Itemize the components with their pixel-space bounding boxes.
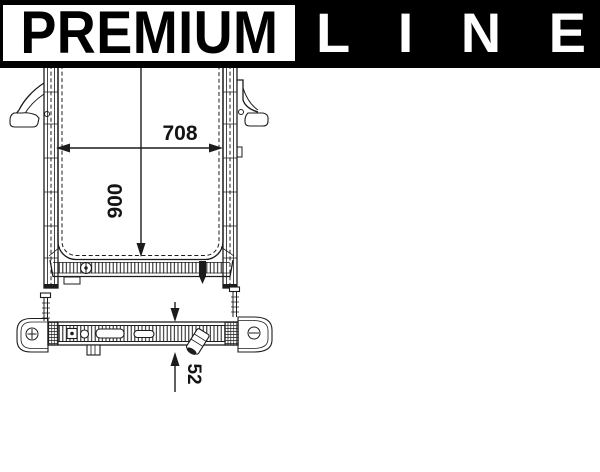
height-dimension-label: 900 — [104, 183, 127, 218]
bottom-tab — [87, 345, 100, 355]
dimension-width: 708 — [56, 122, 223, 153]
premium-badge: PREMIUM — [3, 5, 295, 61]
depth-dimension-label: 52 — [183, 363, 204, 384]
right-mounting-bolt — [230, 287, 240, 317]
line-letter-n: N — [461, 5, 501, 61]
right-mounting-bracket — [237, 80, 268, 126]
line-wordmark: L I N E — [316, 5, 586, 61]
premium-label: PREMIUM — [20, 5, 278, 61]
left-side-channel — [44, 30, 58, 288]
line-letter-i: I — [398, 5, 414, 61]
bottom-tank — [50, 260, 233, 284]
premium-line-banner: PREMIUM L I N E — [0, 0, 600, 68]
dimension-height: 900 — [104, 37, 146, 257]
line-letter-l: L — [316, 5, 350, 61]
side-right-bracket — [238, 317, 272, 352]
line-letter-e: E — [549, 5, 586, 61]
radiator-side-view — [17, 287, 272, 357]
right-side-channel — [223, 30, 242, 288]
product-image: 900 708 — [0, 0, 600, 472]
side-body — [48, 322, 238, 357]
side-left-bracket — [17, 319, 48, 353]
width-dimension-label: 708 — [162, 122, 197, 145]
bottom-pin — [199, 261, 206, 284]
left-mounting-bolt — [41, 293, 51, 321]
